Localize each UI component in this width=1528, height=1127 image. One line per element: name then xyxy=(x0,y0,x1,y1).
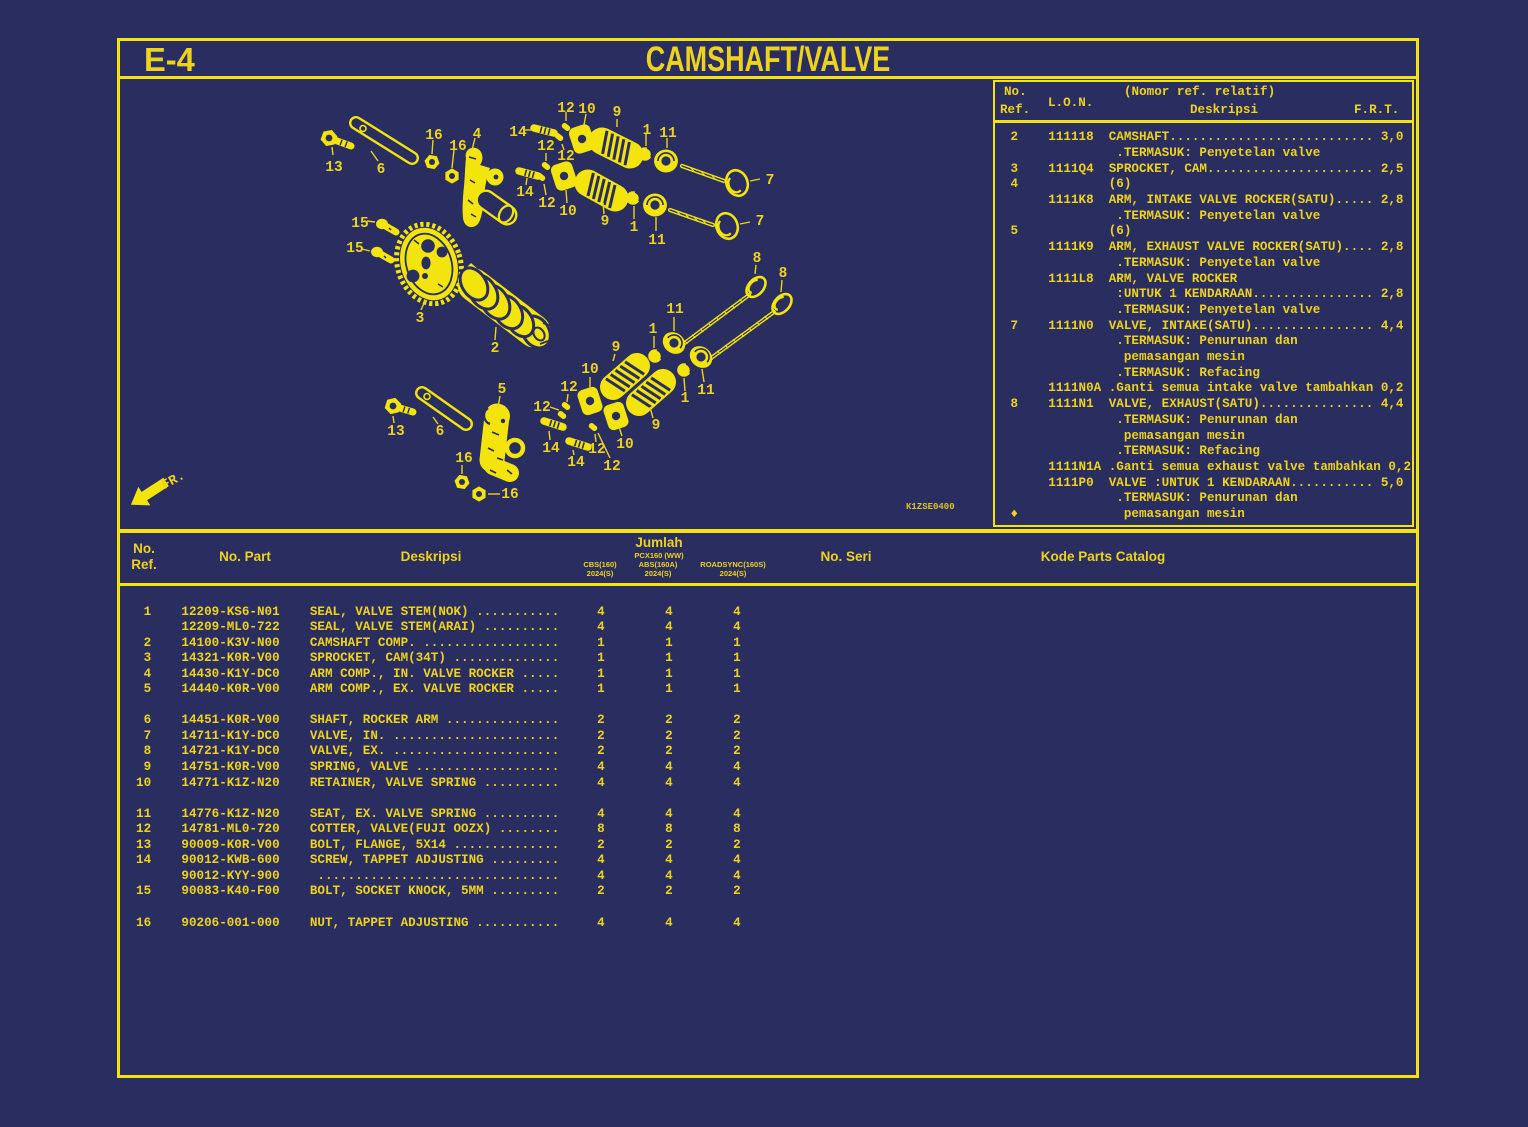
svg-text:12: 12 xyxy=(560,380,577,396)
svg-text:16: 16 xyxy=(425,128,442,144)
svg-text:16: 16 xyxy=(455,451,472,467)
svg-text:2: 2 xyxy=(491,341,500,357)
svg-text:1: 1 xyxy=(649,322,658,338)
svg-text:6: 6 xyxy=(377,162,386,178)
svg-text:15: 15 xyxy=(346,241,363,257)
svg-text:8: 8 xyxy=(779,266,788,282)
svg-text:9: 9 xyxy=(601,214,610,230)
svg-text:12: 12 xyxy=(533,400,550,416)
svg-text:1: 1 xyxy=(681,391,690,407)
svg-text:12: 12 xyxy=(538,196,555,212)
svg-text:14: 14 xyxy=(516,185,534,201)
svg-text:9: 9 xyxy=(612,340,621,356)
svg-text:10: 10 xyxy=(581,362,598,378)
svg-text:12: 12 xyxy=(603,459,620,475)
svg-text:1: 1 xyxy=(630,220,639,236)
svg-text:14: 14 xyxy=(567,455,585,471)
svg-text:K1ZSE0400: K1ZSE0400 xyxy=(906,502,955,512)
svg-text:12: 12 xyxy=(537,139,554,155)
svg-text:9: 9 xyxy=(613,105,622,121)
svg-text:13: 13 xyxy=(387,424,404,440)
svg-text:16: 16 xyxy=(501,487,518,503)
svg-text:11: 11 xyxy=(648,233,666,249)
svg-text:3: 3 xyxy=(416,311,425,327)
svg-text:7: 7 xyxy=(766,173,775,189)
svg-text:9: 9 xyxy=(652,418,661,434)
svg-text:FR.: FR. xyxy=(159,469,188,494)
svg-text:13: 13 xyxy=(325,160,342,176)
svg-text:10: 10 xyxy=(578,102,595,118)
svg-text:10: 10 xyxy=(616,437,633,453)
svg-text:16: 16 xyxy=(449,139,466,155)
svg-text:11: 11 xyxy=(666,302,684,318)
svg-text:4: 4 xyxy=(473,127,482,143)
svg-text:11: 11 xyxy=(697,383,715,399)
svg-text:8: 8 xyxy=(753,251,762,267)
svg-text:1: 1 xyxy=(643,123,652,139)
svg-text:5: 5 xyxy=(498,382,507,398)
svg-text:7: 7 xyxy=(756,214,765,230)
svg-text:10: 10 xyxy=(559,204,576,220)
svg-text:14: 14 xyxy=(509,125,527,141)
svg-text:15: 15 xyxy=(351,216,368,232)
svg-text:14: 14 xyxy=(542,441,560,457)
svg-text:6: 6 xyxy=(436,424,445,440)
svg-text:11: 11 xyxy=(659,126,677,142)
svg-text:12: 12 xyxy=(557,101,574,117)
